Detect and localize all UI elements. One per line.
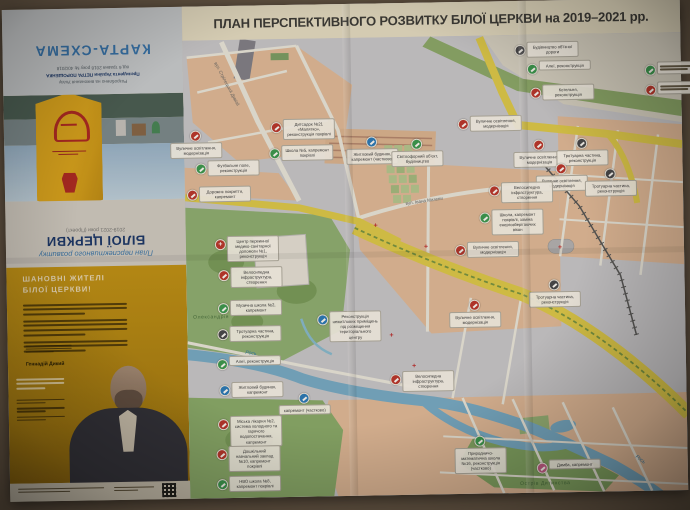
marker-label: Велосипедна інфраструктура, створення bbox=[402, 370, 454, 392]
map-marker bbox=[645, 65, 654, 74]
map-marker: Алеї, реконструкція bbox=[217, 359, 226, 368]
marker-label: Алеї, реконструкція bbox=[539, 60, 591, 71]
green-marker-icon bbox=[527, 64, 538, 75]
red-marker-icon bbox=[216, 449, 227, 460]
marker-label: Велосипедна інфраструктура, створення bbox=[230, 266, 282, 288]
map-marker: Алеї, реконструкція bbox=[527, 64, 536, 73]
marker-label bbox=[657, 61, 690, 75]
map-marker: Тротуарна частина, реконструкція bbox=[605, 168, 614, 177]
map-marker: Велосипедна інфраструктура, створення bbox=[218, 270, 227, 279]
map-marker: Дошкільний навчальний заклад №10, капрем… bbox=[216, 449, 225, 458]
red-marker-icon bbox=[190, 130, 201, 141]
map-marker: Тротуарна частина, реконструкція bbox=[549, 279, 558, 288]
street-label: Рось bbox=[245, 350, 257, 357]
marker-label: Школа, капремонт покрівлі, заміна енерго… bbox=[491, 209, 543, 236]
marker-label: Дамба, капремонт bbox=[549, 459, 601, 470]
map-marker: Школа, капремонт покрівлі, заміна енерго… bbox=[479, 212, 488, 221]
marker-label: капремонт (частково) bbox=[279, 404, 331, 415]
red-marker-icon bbox=[218, 270, 229, 281]
red-marker-icon bbox=[645, 85, 656, 96]
red-marker-icon bbox=[218, 419, 229, 430]
marker-label: Музична школа №2, капремонт bbox=[230, 299, 282, 315]
marker-label: Тротуарна частина, реконструкція bbox=[529, 291, 581, 307]
paper-map: Розроблено на виконання Указу Президента… bbox=[2, 0, 688, 502]
dark-marker-icon bbox=[217, 329, 228, 340]
marker-label: Вуличне освітлення, модернізація bbox=[470, 115, 522, 131]
map-marker: Житловий будинок, капремонт (частково) bbox=[366, 136, 375, 145]
pink-marker-icon bbox=[537, 462, 548, 473]
marker-label: Дитсадок №21 «Малятко», реконструкція по… bbox=[283, 118, 335, 140]
map-marker: Вуличне освітлення, модернізація bbox=[469, 300, 478, 309]
dark-marker-icon bbox=[549, 279, 560, 290]
map-marker: Світлофорний об'єкт, будівництво bbox=[411, 139, 420, 148]
red-marker-icon bbox=[533, 140, 544, 151]
map-marker: Вуличне освітлення, модернізація bbox=[533, 140, 542, 149]
map-marker: Котельня, реконструкція bbox=[530, 88, 539, 97]
map-marker: Музична школа №2, капремонт bbox=[218, 303, 227, 312]
map-marker: Велосипедна інфраструктура, створення bbox=[390, 374, 399, 383]
marker-label: Футбольне поле, реконструкція bbox=[207, 159, 259, 175]
marker-label: Школа №5, капремонт покрівлі bbox=[281, 144, 333, 160]
marker-label: Вуличне освітлення, модернізація bbox=[449, 311, 501, 327]
marker-label bbox=[657, 81, 690, 95]
blue-marker-icon bbox=[366, 136, 377, 147]
street-label: Рось bbox=[634, 454, 647, 466]
green-marker-icon bbox=[269, 148, 280, 159]
map-marker: Дитсадок №21 «Малятко», реконструкція по… bbox=[271, 122, 280, 131]
green-marker-icon bbox=[474, 436, 485, 447]
green-marker-icon bbox=[217, 359, 228, 370]
map-marker: Міська лікарня №2, система холодного та … bbox=[218, 419, 227, 428]
map-marker: Школа №5, капремонт покрівлі bbox=[269, 148, 278, 157]
marker-label: НВО школа №8, капремонт покрівлі bbox=[229, 475, 281, 491]
map-marker: +Центр первинної медико-санітарної допом… bbox=[215, 239, 224, 248]
dark-marker-icon bbox=[576, 138, 587, 149]
street-label: Олександрія bbox=[193, 314, 229, 321]
map-marker bbox=[645, 85, 654, 94]
marker-label: Вуличне освітлення, модернізація bbox=[170, 142, 222, 158]
map-marker: Дорожнє покриття, капремонт bbox=[187, 190, 196, 199]
red-marker-icon bbox=[530, 88, 541, 99]
blue-marker-icon bbox=[317, 314, 328, 325]
green-marker-icon bbox=[645, 65, 656, 76]
red-marker-icon bbox=[390, 374, 401, 385]
blue-marker-icon bbox=[298, 393, 309, 404]
marker-label: Будівництво об'їзної дороги bbox=[526, 41, 578, 57]
green-marker-icon bbox=[217, 479, 228, 490]
red-marker-icon bbox=[469, 300, 480, 311]
red-marker-icon bbox=[489, 185, 500, 196]
street-label: вул. Стрілецької Дивізії bbox=[213, 61, 240, 106]
map-marker: Природничо-математична школа №16, реконс… bbox=[474, 436, 483, 445]
map-marker: Тротуарна частина, реконструкція bbox=[217, 329, 226, 338]
map-marker: Житловий будинок, капремонт bbox=[219, 385, 228, 394]
marker-label: Міська лікарня №2, система холодного та … bbox=[230, 415, 283, 447]
marker-label: Дорожнє покриття, капремонт bbox=[199, 186, 251, 202]
map-marker: Вуличне освітлення, модернізація bbox=[190, 131, 199, 140]
marker-label: Котельня, реконструкція bbox=[542, 84, 594, 100]
red-marker-icon bbox=[556, 163, 567, 174]
red-marker-icon bbox=[271, 122, 282, 133]
map-marker: Вуличне освітлення, модернізація bbox=[556, 163, 565, 172]
map-marker: Велосипедна інфраструктура, створення bbox=[489, 185, 498, 194]
street-label: вул. Івана Мазепи bbox=[405, 196, 443, 206]
green-marker-icon bbox=[218, 303, 229, 314]
red-marker-icon bbox=[187, 190, 198, 201]
green-marker-icon bbox=[411, 139, 422, 150]
marker-label: Тротуарна частина, реконструкція bbox=[585, 180, 637, 196]
photo-of-paper-map: Розроблено на виконання Указу Президента… bbox=[0, 0, 690, 510]
blue-marker-icon bbox=[219, 385, 230, 396]
green-marker-icon bbox=[479, 212, 490, 223]
marker-label: Житловий будинок, капремонт bbox=[231, 381, 283, 397]
marker-label: Тротуарна частина, реконструкція bbox=[229, 325, 281, 341]
map-marker: Вуличне освітлення, модернізація bbox=[458, 119, 467, 128]
marker-label: Природничо-математична школа №16, реконс… bbox=[454, 447, 506, 474]
dark-marker-icon bbox=[605, 168, 616, 179]
green-marker-icon bbox=[195, 163, 206, 174]
map-marker: Дамба, капремонт bbox=[537, 463, 546, 472]
map-marker: капремонт (частково) bbox=[298, 393, 307, 402]
map-marker: Футбольне поле, реконструкція bbox=[195, 163, 204, 172]
map-marker: НВО школа №8, капремонт покрівлі bbox=[217, 479, 226, 488]
marker-label: Світлофорний об'єкт, будівництво bbox=[391, 150, 443, 166]
map-marker: Реконструкція нежитлових приміщень під р… bbox=[317, 314, 326, 323]
red-marker-icon: + bbox=[215, 239, 226, 250]
red-marker-icon bbox=[458, 119, 469, 130]
marker-label: Дошкільний навчальний заклад №10, капрем… bbox=[228, 445, 280, 472]
map-marker: Тротуарна частина, реконструкція bbox=[576, 138, 585, 147]
